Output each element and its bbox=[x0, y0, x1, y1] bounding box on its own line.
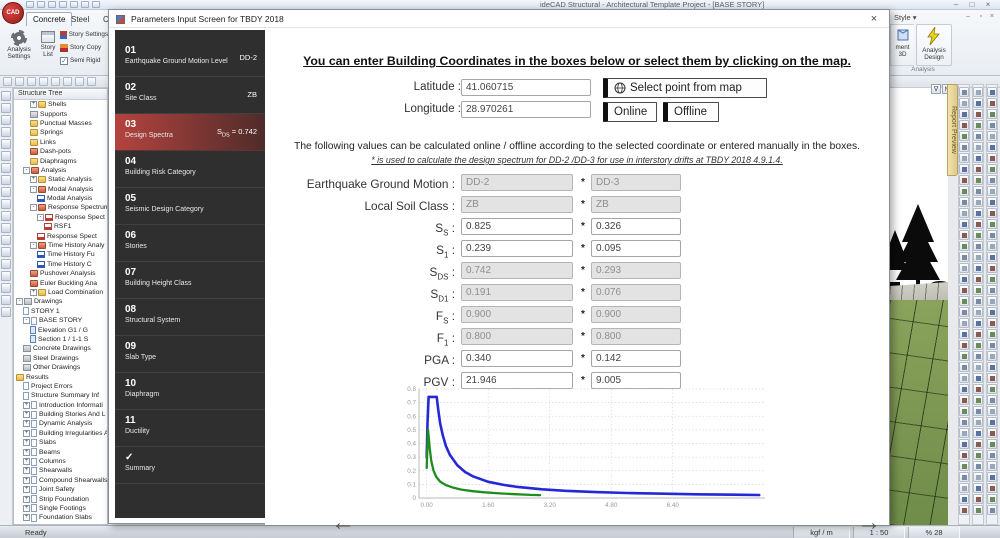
tool-icon[interactable] bbox=[987, 175, 997, 185]
story-copy-button[interactable]: Story Copy bbox=[60, 42, 108, 53]
collapse-icon[interactable]: - bbox=[16, 298, 23, 305]
print-icon[interactable] bbox=[70, 1, 78, 8]
tool-icon[interactable] bbox=[973, 406, 983, 416]
param-label: SS : bbox=[265, 221, 455, 237]
tree-item-label: Joint Safety bbox=[39, 486, 75, 493]
tree-item[interactable]: -Drawings bbox=[14, 297, 107, 306]
tool-icon[interactable] bbox=[987, 417, 997, 427]
page-icon bbox=[31, 458, 37, 466]
tool-icon[interactable] bbox=[973, 230, 983, 240]
tool-icon[interactable] bbox=[987, 351, 997, 361]
story-settings-button[interactable]: Story Settings bbox=[60, 29, 108, 40]
tool-icon[interactable] bbox=[973, 329, 983, 339]
chart-blue-icon bbox=[37, 261, 45, 268]
tree-item[interactable]: Diaphragms bbox=[14, 156, 107, 165]
tool-icon[interactable] bbox=[973, 186, 983, 196]
folder-icon bbox=[38, 289, 46, 296]
tool-icon[interactable] bbox=[959, 362, 969, 372]
tool-icon[interactable] bbox=[959, 263, 969, 273]
filter-down-button[interactable]: ∇ bbox=[931, 84, 941, 94]
sidebar-step-08[interactable]: 08Structural System bbox=[115, 299, 265, 336]
tool-icon[interactable] bbox=[973, 263, 983, 273]
collapse-icon[interactable]: - bbox=[30, 204, 37, 211]
tool-icon[interactable] bbox=[1, 235, 11, 245]
home-icon[interactable] bbox=[26, 1, 34, 8]
tool-icon[interactable] bbox=[987, 384, 997, 394]
pen-icon[interactable] bbox=[39, 77, 48, 86]
save-icon[interactable] bbox=[59, 1, 67, 8]
tool-icon[interactable] bbox=[973, 120, 983, 130]
tool-icon[interactable] bbox=[973, 175, 983, 185]
sidebar-step-10[interactable]: 10Diaphragm bbox=[115, 373, 265, 410]
sidebar-step-04[interactable]: 04Building Risk Category bbox=[115, 151, 265, 188]
tool-icon[interactable] bbox=[959, 274, 969, 284]
param-label: S1 : bbox=[265, 243, 455, 259]
tool-icon[interactable] bbox=[1, 211, 11, 221]
tool-icon[interactable] bbox=[987, 87, 997, 97]
tool-icon[interactable] bbox=[959, 120, 969, 130]
tool-icon[interactable] bbox=[959, 483, 969, 493]
tree-item[interactable]: RSF1 bbox=[14, 222, 107, 231]
tree-item[interactable]: +Dynamic Analysis bbox=[14, 419, 107, 428]
tool-icon[interactable] bbox=[973, 340, 983, 350]
status-units[interactable]: kgf / m bbox=[793, 527, 850, 538]
undo-icon[interactable] bbox=[81, 1, 89, 8]
expand-icon[interactable]: + bbox=[30, 176, 37, 183]
param-input-secondary[interactable] bbox=[591, 350, 681, 367]
tool-icon[interactable] bbox=[959, 450, 969, 460]
sidebar-step-01[interactable]: 01Earthquake Ground Motion LevelDD-2 bbox=[115, 40, 265, 77]
tool-icon[interactable] bbox=[973, 109, 983, 119]
tree-item-label: Results bbox=[26, 374, 49, 381]
sidebar-step-02[interactable]: 02Site ClassZB bbox=[115, 77, 265, 114]
tool-icon[interactable] bbox=[987, 395, 997, 405]
tool-icon[interactable] bbox=[1, 139, 11, 149]
svg-text:0.2: 0.2 bbox=[407, 468, 416, 475]
tree-item-label: Foundation Slabs bbox=[39, 514, 92, 521]
sidebar-step-03[interactable]: 03Design SpectraSDS = 0.742 bbox=[115, 114, 265, 151]
tree-item[interactable]: Concrete Drawings bbox=[14, 344, 107, 353]
tool-icon[interactable] bbox=[959, 241, 969, 251]
structure-tree: +ShellsSupportsPunctual MassesSpringsLin… bbox=[14, 100, 107, 523]
tree-item[interactable]: +Columns bbox=[14, 457, 107, 466]
edit-icon[interactable] bbox=[27, 77, 36, 86]
tree-item[interactable]: STORY 1 bbox=[14, 307, 107, 316]
tool-icon[interactable] bbox=[959, 285, 969, 295]
tool-icon[interactable] bbox=[959, 318, 969, 328]
tool-icon[interactable] bbox=[959, 164, 969, 174]
tree-item[interactable]: Modal Analysis bbox=[14, 194, 107, 203]
tool-icon[interactable] bbox=[987, 362, 997, 372]
tool-icon[interactable] bbox=[959, 351, 969, 361]
new-file-icon[interactable] bbox=[37, 1, 45, 8]
tool-icon[interactable] bbox=[959, 230, 969, 240]
tool-icon[interactable] bbox=[973, 197, 983, 207]
tool-icon[interactable] bbox=[987, 439, 997, 449]
tool-icon[interactable] bbox=[959, 109, 969, 119]
open-icon[interactable] bbox=[48, 1, 56, 8]
sidebar-step-07[interactable]: 07Building Height Class bbox=[115, 262, 265, 299]
tree-item[interactable]: +Building Irregularities A bbox=[14, 429, 107, 438]
tree-item[interactable]: -Modal Analysis bbox=[14, 185, 107, 194]
tool-icon[interactable] bbox=[973, 98, 983, 108]
idecad-logo[interactable]: CAD bbox=[2, 2, 24, 24]
collapse-icon[interactable]: - bbox=[37, 214, 44, 221]
expand-icon[interactable]: + bbox=[23, 486, 30, 493]
tool-icon[interactable] bbox=[973, 285, 983, 295]
move-icon[interactable] bbox=[87, 77, 96, 86]
param-input-primary[interactable] bbox=[461, 350, 573, 367]
doc-minimize-button[interactable]: – bbox=[966, 13, 970, 20]
semi-rigid-checkbox[interactable]: ✓ Semi Rigid bbox=[60, 55, 108, 66]
tree-item[interactable]: Supports bbox=[14, 109, 107, 118]
tool-icon[interactable] bbox=[987, 318, 997, 328]
tree-item[interactable]: Euler Buckling Ana bbox=[14, 278, 107, 287]
tool-icon[interactable] bbox=[959, 406, 969, 416]
viewport-3d[interactable] bbox=[890, 88, 948, 525]
sidebar-step-summary[interactable]: ✓Summary bbox=[115, 447, 265, 484]
select-point-from-map-button[interactable]: Select point from map bbox=[603, 78, 767, 98]
story-list-label: Story List bbox=[41, 44, 56, 58]
tree-item[interactable]: Other Drawings bbox=[14, 363, 107, 372]
tool-icon[interactable] bbox=[1, 223, 11, 233]
status-zoom[interactable]: % 28 bbox=[908, 527, 960, 538]
element-3d-button[interactable]: ment 3D bbox=[890, 24, 914, 66]
param-input-secondary[interactable] bbox=[591, 218, 681, 235]
tool-icon[interactable] bbox=[987, 252, 997, 262]
tool-icon[interactable] bbox=[973, 153, 983, 163]
tool-icon[interactable] bbox=[973, 439, 983, 449]
tool-icon[interactable] bbox=[973, 373, 983, 383]
tool-icon[interactable] bbox=[987, 230, 997, 240]
minimize-button[interactable]: – bbox=[948, 0, 964, 9]
project-settings-group: Analysis Settings Story List Story Setti… bbox=[0, 26, 108, 66]
step-number: 06 bbox=[125, 230, 257, 241]
tool-icon[interactable] bbox=[959, 373, 969, 383]
expand-icon[interactable]: + bbox=[23, 458, 30, 465]
tree-item-label: Dash-pots bbox=[40, 148, 71, 155]
tool-icon[interactable] bbox=[987, 131, 997, 141]
tool-icon[interactable] bbox=[1, 175, 11, 185]
tool-icon[interactable] bbox=[959, 219, 969, 229]
tool-icon[interactable] bbox=[973, 450, 983, 460]
tool-icon[interactable] bbox=[959, 197, 969, 207]
tool-icon[interactable] bbox=[1, 271, 11, 281]
report-preview-tab[interactable]: Report Preview bbox=[947, 84, 958, 176]
redo-icon[interactable] bbox=[92, 1, 100, 8]
tool-icon[interactable] bbox=[987, 450, 997, 460]
expand-icon[interactable]: + bbox=[30, 101, 37, 108]
param-input-secondary[interactable] bbox=[591, 240, 681, 257]
tool-icon[interactable] bbox=[973, 307, 983, 317]
tool-icon[interactable] bbox=[987, 274, 997, 284]
tree-item[interactable]: +Load Combination bbox=[14, 288, 107, 297]
tree-item[interactable]: Punctual Masses bbox=[14, 119, 107, 128]
tool-icon[interactable] bbox=[987, 340, 997, 350]
tree-item[interactable]: Time History C bbox=[14, 260, 107, 269]
tool-icon[interactable] bbox=[987, 263, 997, 273]
sidebar-step-09[interactable]: 09Slab Type bbox=[115, 336, 265, 373]
expand-icon[interactable]: + bbox=[23, 439, 30, 446]
tree-item[interactable]: +Foundation Slabs bbox=[14, 513, 107, 522]
tree-item[interactable]: +Shearwalls bbox=[14, 466, 107, 475]
tree-item[interactable]: +Static Analysis bbox=[14, 175, 107, 184]
tree-item[interactable]: +Introduction Informati bbox=[14, 401, 107, 410]
expand-icon[interactable]: + bbox=[30, 289, 37, 296]
tree-item-label: RSF1 bbox=[54, 223, 71, 230]
dialog-titlebar: Parameters Input Screen for TBDY 2018 × bbox=[109, 10, 889, 28]
tree-item-label: Shells bbox=[48, 101, 67, 108]
shape-icon[interactable] bbox=[75, 77, 84, 86]
tool-icon[interactable] bbox=[1, 163, 11, 173]
tool-icon[interactable] bbox=[959, 142, 969, 152]
offline-button[interactable]: Offline bbox=[663, 102, 719, 122]
tool-icon[interactable] bbox=[959, 428, 969, 438]
tool-icon[interactable] bbox=[973, 362, 983, 372]
dialog-close-button[interactable]: × bbox=[867, 13, 881, 25]
tool-icon[interactable] bbox=[959, 505, 969, 515]
flag-icon[interactable] bbox=[51, 77, 60, 86]
tool-icon[interactable] bbox=[987, 153, 997, 163]
param-input-primary[interactable] bbox=[461, 218, 573, 235]
tool-icon[interactable] bbox=[1, 283, 11, 293]
tool-icon[interactable] bbox=[973, 494, 983, 504]
tool-icon[interactable] bbox=[959, 87, 969, 97]
zoom-window-icon[interactable] bbox=[3, 77, 12, 86]
tool-icon[interactable] bbox=[987, 186, 997, 196]
tool-icon[interactable] bbox=[959, 340, 969, 350]
tab-steel[interactable]: Steel bbox=[64, 12, 96, 26]
tool-icon[interactable] bbox=[959, 208, 969, 218]
tool-icon[interactable] bbox=[959, 296, 969, 306]
sidebar-step-11[interactable]: 11Ductility bbox=[115, 410, 265, 447]
tool-icon[interactable] bbox=[1, 247, 11, 257]
sidebar-step-06[interactable]: 06Stories bbox=[115, 225, 265, 262]
svg-text:0: 0 bbox=[412, 495, 416, 502]
tool-icon[interactable] bbox=[987, 494, 997, 504]
tool-icon[interactable] bbox=[959, 98, 969, 108]
online-button[interactable]: Online bbox=[603, 102, 657, 122]
tool-icon[interactable] bbox=[973, 131, 983, 141]
tree-item[interactable]: Structure Summary Inf bbox=[14, 391, 107, 400]
tree-item[interactable]: +Joint Safety bbox=[14, 485, 107, 494]
expand-icon[interactable]: + bbox=[23, 505, 30, 512]
tool-icon[interactable] bbox=[973, 505, 983, 515]
tool-icon[interactable] bbox=[1, 151, 11, 161]
asterisk-marker: * bbox=[581, 199, 585, 210]
tool-icon[interactable] bbox=[987, 120, 997, 130]
expand-icon[interactable]: + bbox=[23, 449, 30, 456]
step-label: Slab Type bbox=[125, 354, 257, 361]
tool-icon[interactable] bbox=[987, 241, 997, 251]
tool-icon[interactable] bbox=[973, 395, 983, 405]
tree-item[interactable]: +Beams bbox=[14, 447, 107, 456]
doc-close-button[interactable]: × bbox=[990, 13, 994, 20]
tool-icon[interactable] bbox=[1, 127, 11, 137]
tree-item[interactable]: +Shells bbox=[14, 100, 107, 109]
tree-item[interactable]: Steel Drawings bbox=[14, 354, 107, 363]
tool-icon[interactable] bbox=[987, 483, 997, 493]
doc-restore-button[interactable]: ▫ bbox=[980, 13, 982, 20]
tool-icon[interactable] bbox=[973, 142, 983, 152]
page-icon bbox=[31, 317, 37, 325]
tool-icon[interactable] bbox=[987, 461, 997, 471]
longitude-input[interactable] bbox=[461, 101, 591, 118]
collapse-icon[interactable]: - bbox=[30, 242, 37, 249]
tool-icon[interactable] bbox=[987, 219, 997, 229]
tool-icon[interactable] bbox=[987, 98, 997, 108]
tree-item[interactable]: +Compound Shearwalls bbox=[14, 476, 107, 485]
tree-item[interactable]: -Response Spect bbox=[14, 213, 107, 222]
param-row: FS :* bbox=[265, 306, 889, 328]
tool-icon[interactable] bbox=[987, 285, 997, 295]
tree-item[interactable]: Dash-pots bbox=[14, 147, 107, 156]
tool-icon[interactable] bbox=[973, 219, 983, 229]
tool-icon[interactable] bbox=[1, 259, 11, 269]
window-title: ideCAD Structural - Architectural Templa… bbox=[540, 0, 764, 9]
tree-item[interactable]: +Strip Foundation bbox=[14, 494, 107, 503]
tree-item[interactable]: Pushover Analysis bbox=[14, 269, 107, 278]
tool-icon[interactable] bbox=[987, 142, 997, 152]
tree-item[interactable]: Springs bbox=[14, 128, 107, 137]
tool-icon[interactable] bbox=[973, 252, 983, 262]
tool-icon[interactable] bbox=[973, 274, 983, 284]
tool-icon[interactable] bbox=[959, 494, 969, 504]
angle-icon[interactable] bbox=[63, 77, 72, 86]
expand-icon[interactable]: + bbox=[23, 514, 30, 521]
tool-icon[interactable] bbox=[987, 296, 997, 306]
tool-icon[interactable] bbox=[987, 428, 997, 438]
expand-icon[interactable]: + bbox=[23, 477, 30, 484]
tree-item[interactable]: -Time History Analy bbox=[14, 241, 107, 250]
tree-item[interactable]: +Building Stories And L bbox=[14, 410, 107, 419]
tool-icon[interactable] bbox=[973, 472, 983, 482]
collapse-icon[interactable]: - bbox=[23, 317, 30, 324]
tool-icon[interactable] bbox=[987, 373, 997, 383]
param-input-primary[interactable] bbox=[461, 240, 573, 257]
sidebar-step-05[interactable]: 05Seismic Design Category bbox=[115, 188, 265, 225]
param-label: SDS : bbox=[265, 265, 455, 281]
tool-icon[interactable] bbox=[987, 472, 997, 482]
tree-item[interactable]: Response Spect bbox=[14, 231, 107, 240]
tool-icon[interactable] bbox=[973, 417, 983, 427]
tool-icon[interactable] bbox=[959, 175, 969, 185]
analysis-settings-button[interactable]: Analysis Settings bbox=[2, 28, 36, 66]
tool-icon[interactable] bbox=[959, 472, 969, 482]
tool-icon[interactable] bbox=[973, 296, 983, 306]
close-button[interactable]: × bbox=[980, 0, 996, 9]
param-row: PGA :* bbox=[265, 350, 889, 372]
tool-icon[interactable] bbox=[959, 461, 969, 471]
tool-icon[interactable] bbox=[987, 208, 997, 218]
tool-icon[interactable] bbox=[973, 428, 983, 438]
expand-icon[interactable]: + bbox=[23, 430, 30, 437]
tree-item[interactable]: +Single Footings bbox=[14, 504, 107, 513]
param-input-primary bbox=[461, 262, 573, 279]
expand-icon[interactable]: + bbox=[23, 420, 30, 427]
step-value: DD-2 bbox=[239, 53, 257, 62]
tool-icon[interactable] bbox=[959, 153, 969, 163]
analysis-design-button[interactable]: Analysis Design bbox=[916, 24, 952, 66]
tool-icon[interactable] bbox=[987, 197, 997, 207]
zoom-extents-icon[interactable] bbox=[15, 77, 24, 86]
analysis-settings-label: Analysis Settings bbox=[7, 46, 30, 60]
tool-icon[interactable] bbox=[987, 329, 997, 339]
expand-icon[interactable]: + bbox=[23, 402, 30, 409]
tool-icon[interactable] bbox=[1, 115, 11, 125]
maximize-button[interactable]: □ bbox=[964, 0, 980, 9]
gear-icon bbox=[11, 30, 27, 46]
tree-item[interactable]: Links bbox=[14, 138, 107, 147]
tool-icon[interactable] bbox=[959, 395, 969, 405]
tree-item[interactable]: Time History Fu bbox=[14, 250, 107, 259]
next-arrow-button[interactable]: → bbox=[857, 512, 881, 534]
tree-item[interactable]: -BASE STORY bbox=[14, 316, 107, 325]
tool-icon[interactable] bbox=[959, 131, 969, 141]
tool-icon[interactable] bbox=[987, 109, 997, 119]
tool-icon[interactable] bbox=[987, 505, 997, 515]
story-settings-label: Story Settings bbox=[69, 31, 108, 38]
tree-item[interactable]: -Analysis bbox=[14, 166, 107, 175]
tool-icon[interactable] bbox=[973, 384, 983, 394]
tool-icon[interactable] bbox=[1, 295, 11, 305]
tool-icon[interactable] bbox=[1, 187, 11, 197]
tool-icon[interactable] bbox=[973, 208, 983, 218]
tool-icon[interactable] bbox=[973, 318, 983, 328]
svg-text:0.1: 0.1 bbox=[407, 481, 416, 488]
tree-item[interactable]: -Response Spectrum bbox=[14, 203, 107, 212]
expand-icon[interactable]: + bbox=[23, 496, 30, 503]
tree-item[interactable]: Section 1 / 1-1 S bbox=[14, 335, 107, 344]
tool-icon[interactable] bbox=[959, 307, 969, 317]
tool-icon[interactable] bbox=[973, 164, 983, 174]
tool-icon[interactable] bbox=[1, 103, 11, 113]
tool-icon[interactable] bbox=[1, 307, 11, 317]
tree-item[interactable]: Elevation G1 / G bbox=[14, 325, 107, 334]
tool-icon[interactable] bbox=[959, 186, 969, 196]
tool-icon[interactable] bbox=[959, 252, 969, 262]
tool-icon[interactable] bbox=[973, 351, 983, 361]
param-label: Earthquake Ground Motion : bbox=[265, 177, 455, 191]
tree-item[interactable]: +Slabs bbox=[14, 438, 107, 447]
expand-icon[interactable]: + bbox=[23, 467, 30, 474]
tree-item[interactable]: Project Errors bbox=[14, 382, 107, 391]
tool-icon[interactable] bbox=[959, 417, 969, 427]
tool-icon[interactable] bbox=[987, 164, 997, 174]
tool-icon[interactable] bbox=[1, 91, 11, 101]
tool-icon[interactable] bbox=[987, 307, 997, 317]
tool-icon[interactable] bbox=[973, 87, 983, 97]
tree-item[interactable]: Results bbox=[14, 372, 107, 381]
tool-icon[interactable] bbox=[1, 199, 11, 209]
tool-icon[interactable] bbox=[959, 329, 969, 339]
tool-icon[interactable] bbox=[973, 461, 983, 471]
page-icon bbox=[31, 439, 37, 447]
tool-icon[interactable] bbox=[959, 439, 969, 449]
back-arrow-button[interactable]: ← bbox=[331, 512, 355, 534]
tool-icon[interactable] bbox=[973, 483, 983, 493]
style-dropdown[interactable]: Style ▾ bbox=[894, 13, 917, 22]
tool-icon[interactable] bbox=[973, 241, 983, 251]
tool-icon[interactable] bbox=[987, 406, 997, 416]
latitude-input[interactable] bbox=[461, 79, 591, 96]
story-list-button[interactable]: Story List bbox=[36, 28, 60, 66]
tool-icon[interactable] bbox=[959, 384, 969, 394]
step-label: Site Class bbox=[125, 95, 257, 102]
collapse-icon[interactable]: - bbox=[23, 167, 30, 174]
collapse-icon[interactable]: - bbox=[30, 186, 37, 193]
expand-icon[interactable]: + bbox=[23, 411, 30, 418]
